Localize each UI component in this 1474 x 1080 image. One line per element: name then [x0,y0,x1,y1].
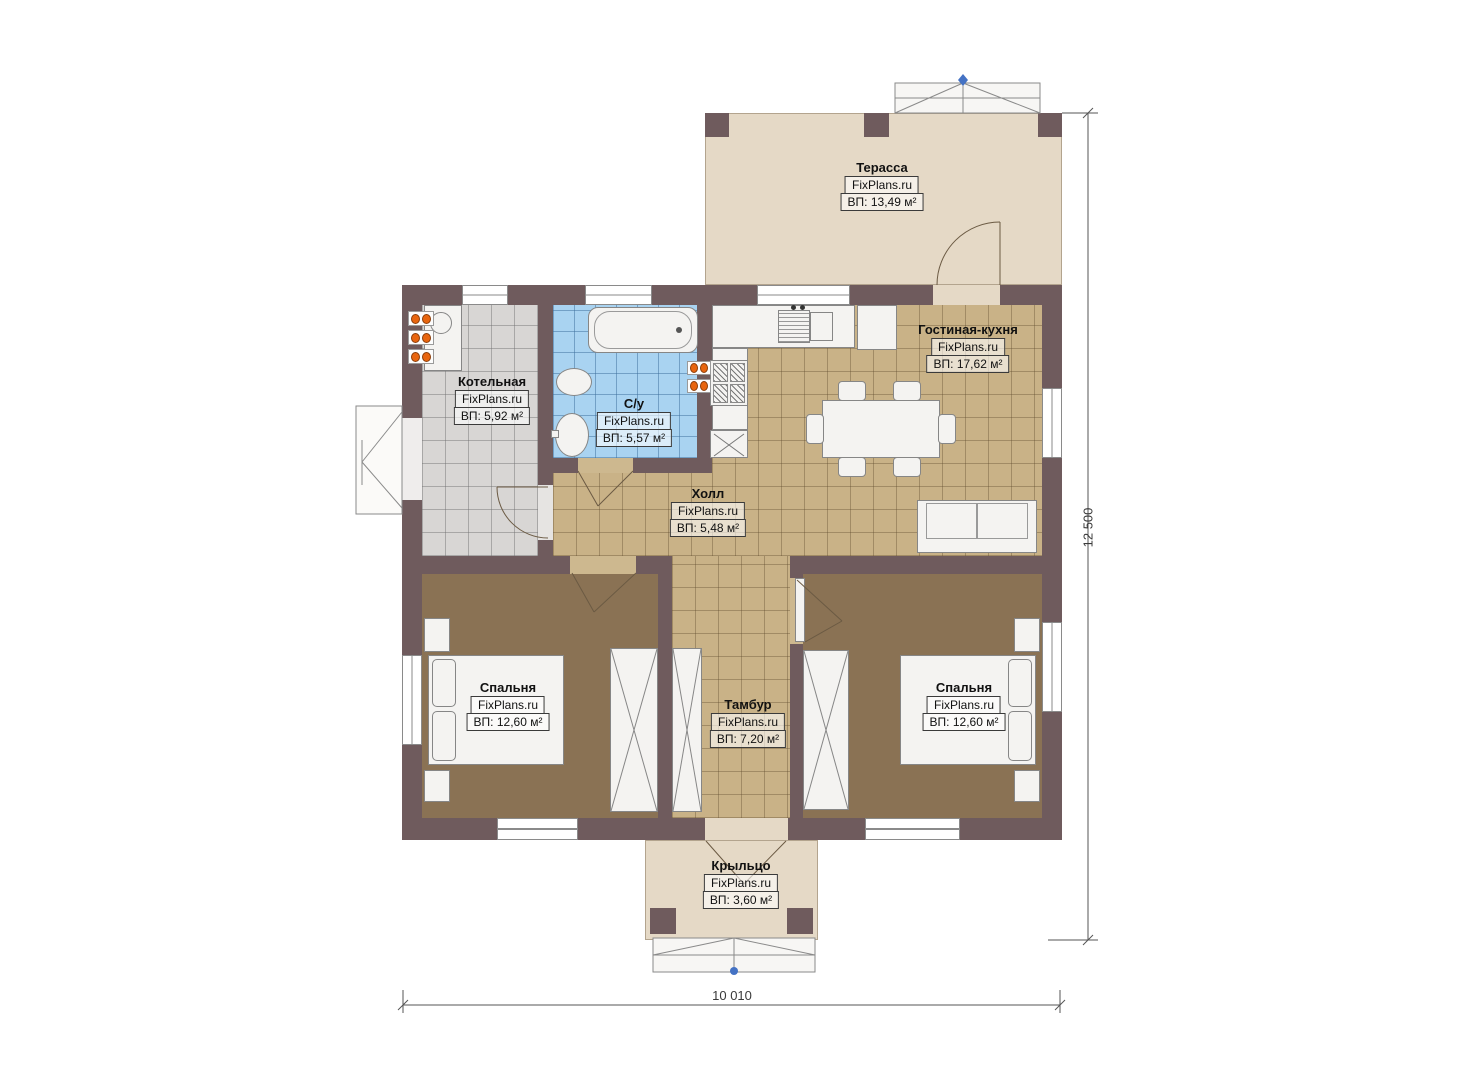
brand-watermark: FixPlans.ru [671,502,745,520]
fridge [857,305,897,350]
brand-watermark: FixPlans.ru [931,338,1005,356]
nightstand [1014,770,1040,802]
toilet [556,368,592,396]
porch-column [650,908,676,934]
door-leaf [795,578,805,642]
terrace-door-opening [933,285,1000,305]
porch-stairs [653,938,815,972]
room-name: С/у [624,396,644,411]
sink-drainboard [778,310,810,343]
room-name: Холл [692,486,725,501]
radiator [687,379,711,393]
brand-watermark: FixPlans.ru [704,874,778,892]
dining-table [822,400,940,458]
room-area: ВП: 13,49 м² [841,193,924,211]
room-label-bathroom: С/у FixPlans.ru ВП: 5,57 м² [596,396,672,447]
kitchen-cabinet [710,430,748,458]
wall-bedroom-right-top [790,556,1062,574]
bathtub-faucet [676,327,682,333]
stove [710,360,748,406]
room-area: ВП: 5,57 м² [596,429,672,447]
room-area: ВП: 7,20 м² [710,730,786,748]
chair [838,381,866,401]
room-label-bedroom-left: Спальня FixPlans.ru ВП: 12,60 м² [467,680,550,731]
radiator [408,311,434,326]
chair [806,414,824,444]
brand-watermark: FixPlans.ru [471,696,545,714]
washbasin-faucet [551,430,559,438]
window-bedroom-left-bottom [497,818,578,840]
entry-door-opening [705,818,788,840]
sink-faucet [800,305,805,310]
room-area: ВП: 17,62 м² [927,355,1010,373]
terrace-stairs [895,83,1040,113]
terrace-stairs-marker [958,74,968,86]
room-name: Спальня [480,680,536,695]
sofa-cushion [977,503,1028,539]
brand-watermark: FixPlans.ru [927,696,1001,714]
radiator [687,361,711,375]
wardrobe [803,650,849,810]
boiler-hall-door-opening [538,485,553,540]
room-name: Тамбур [724,697,771,712]
room-label-terrace: Терасса FixPlans.ru ВП: 13,49 м² [841,160,924,211]
brand-watermark: FixPlans.ru [845,176,919,194]
room-label-boiler: Котельная FixPlans.ru ВП: 5,92 м² [454,374,530,425]
kitchen-sink [810,312,833,341]
radiator [408,349,434,364]
room-name: Гостиная-кухня [918,322,1018,337]
boiler-exterior-door-opening [402,418,422,500]
brand-watermark: FixPlans.ru [711,713,785,731]
wardrobe [610,648,658,812]
room-label-living-kitchen: Гостиная-кухня FixPlans.ru ВП: 17,62 м² [918,322,1018,373]
nightstand [424,618,450,652]
window-bedroom-right [1042,622,1062,712]
floor-plan: Терасса FixPlans.ru ВП: 13,49 м² Гостина… [0,0,1474,1080]
brand-watermark: FixPlans.ru [597,412,671,430]
chair [938,414,956,444]
wardrobe [672,648,702,812]
wall-vestibule-left [658,556,672,818]
room-area: ВП: 12,60 м² [467,713,550,731]
terrace-column [1038,113,1062,137]
chair [893,457,921,477]
window-bedroom-left-side [402,655,422,745]
window-kitchen [757,285,850,305]
chair [893,381,921,401]
room-area: ВП: 3,60 м² [703,891,779,909]
bathroom-door-opening [578,458,633,473]
sofa-cushion [926,503,977,539]
room-area: ВП: 12,60 м² [923,713,1006,731]
room-name: Терасса [856,160,908,175]
terrace-column [864,113,889,137]
door-boiler-exterior [356,406,402,514]
window-bedroom-right-bottom [865,818,960,840]
porch-stairs-marker [730,967,738,975]
pillow [432,659,456,707]
porch-column [787,908,813,934]
brand-watermark: FixPlans.ru [455,390,529,408]
terrace-column [705,113,729,137]
pillow [432,711,456,761]
dimension-vertical-label: 12 500 [1080,508,1095,548]
nightstand [424,770,450,802]
dimension-horizontal-label: 10 010 [712,988,752,1003]
room-label-hall: Холл FixPlans.ru ВП: 5,48 м² [670,486,746,537]
bedroom-left-door-opening [570,556,636,574]
pillow [1008,659,1032,707]
window-living [1042,388,1062,458]
window-bathroom [585,285,652,305]
room-label-vestibule: Тамбур FixPlans.ru ВП: 7,20 м² [710,697,786,748]
room-name: Спальня [936,680,992,695]
room-name: Крыльцо [711,858,770,873]
nightstand [1014,618,1040,652]
window-boiler [462,285,508,305]
sink-faucet [791,305,796,310]
room-area: ВП: 5,48 м² [670,519,746,537]
chair [838,457,866,477]
washbasin [555,413,589,457]
pillow [1008,711,1032,761]
room-label-bedroom-right: Спальня FixPlans.ru ВП: 12,60 м² [923,680,1006,731]
room-label-porch: Крыльцо FixPlans.ru ВП: 3,60 м² [703,858,779,909]
room-area: ВП: 5,92 м² [454,407,530,425]
radiator [408,330,434,345]
room-name: Котельная [458,374,526,389]
